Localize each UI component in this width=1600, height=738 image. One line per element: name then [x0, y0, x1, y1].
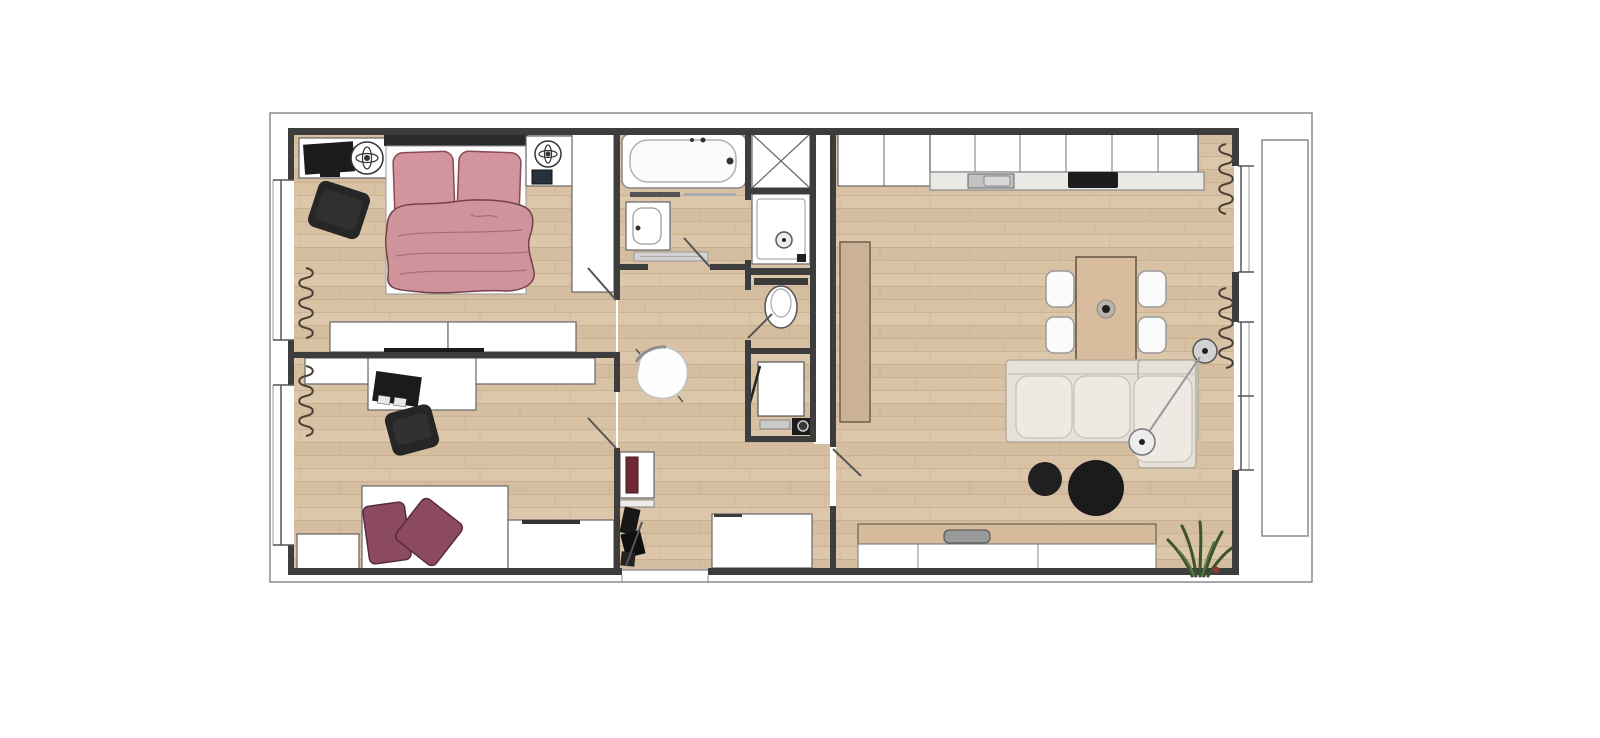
wall-bedroom-office	[288, 352, 620, 358]
sofa-cushion-2	[1074, 376, 1130, 438]
hall-pouf	[637, 347, 687, 398]
wall-right-b	[1232, 272, 1239, 322]
utility-appliance-dial	[798, 421, 808, 431]
floor-plan-page	[0, 0, 1600, 738]
laptop-key-2	[394, 397, 407, 407]
rosette-1-dot	[364, 155, 370, 161]
tv-sideboard-top	[858, 524, 1156, 544]
dining-chair-bl	[1046, 317, 1074, 353]
floor-plan-canvas	[0, 0, 1600, 738]
wall-bath-hall-b	[710, 264, 751, 270]
tub-dot-2	[701, 138, 706, 143]
washbasin-tap	[636, 226, 641, 231]
shower-head-dot	[782, 238, 786, 242]
wall-mid-a	[614, 128, 620, 300]
laptop-key-1	[378, 395, 391, 405]
bed-duvet	[386, 200, 535, 293]
tv-sideboard-front	[858, 544, 1156, 570]
wall-wc-niche	[745, 348, 816, 354]
wall-bottom-a	[288, 568, 622, 575]
living-floor	[836, 132, 1234, 570]
wall-living-b	[830, 506, 836, 568]
dining-chair-br	[1138, 317, 1166, 353]
bed-headboard	[384, 134, 528, 146]
desk-monitor-stand	[320, 172, 340, 177]
wall-col-left-a	[745, 128, 751, 200]
dining-chair-tr	[1138, 271, 1166, 307]
washing-machine	[758, 362, 804, 416]
wall-shaft-shower	[751, 188, 810, 194]
tub-faucet	[727, 158, 734, 165]
bedroom-dresser-left	[330, 322, 448, 352]
wall-left-b	[288, 340, 294, 385]
shower-item	[797, 254, 806, 262]
cooktop	[1068, 172, 1118, 188]
dining-chair-tl	[1046, 271, 1074, 307]
lamp-shade-dot	[1139, 439, 1145, 445]
coffee-table-large	[1068, 460, 1124, 516]
wall-mid-c	[614, 448, 620, 568]
lamp-base-dot	[1202, 348, 1208, 354]
plant-berry	[1213, 567, 1220, 574]
bedroom-wardrobe	[572, 134, 614, 292]
desk-monitor	[303, 141, 355, 174]
wall-top	[288, 128, 1239, 135]
wall-col-left-c	[745, 340, 751, 436]
plan-elements	[270, 113, 1312, 582]
tub-dot-1	[690, 138, 694, 142]
coffee-table-small	[1028, 462, 1062, 496]
balcony	[1262, 140, 1308, 536]
shower-tray	[752, 194, 810, 264]
bath-shelf-dark	[630, 192, 680, 197]
hall-closet	[712, 514, 812, 568]
kitchen-sink-basin	[984, 176, 1010, 186]
rosette-2-dot	[546, 152, 551, 157]
bedroom-dresser-right	[448, 322, 576, 352]
wall-bath-hall-a	[614, 264, 648, 270]
wc-tank	[754, 278, 808, 285]
shaft-strip	[814, 128, 832, 444]
tv	[944, 530, 990, 543]
wall-right-c	[1232, 470, 1239, 575]
hall-closet-track	[714, 514, 742, 517]
office-corner-cabinet	[297, 534, 359, 570]
bathtub-inner	[630, 140, 736, 182]
sofa-cushion-1	[1016, 376, 1072, 438]
wall-col-right	[810, 128, 816, 442]
wall-shower-wc	[745, 268, 816, 275]
wc-bowl	[765, 286, 797, 328]
office-low-cabinet	[508, 520, 614, 570]
nightstand-books	[532, 170, 552, 184]
hall-artwork	[626, 457, 638, 493]
wall-left-a	[288, 128, 294, 180]
living-tall-cabinet	[840, 242, 870, 422]
utility-shelf	[760, 420, 790, 429]
wall-living-a	[830, 128, 836, 447]
low-cabinet-track	[522, 520, 580, 524]
wall-bottom-b	[708, 568, 1239, 575]
table-centerpiece-dot	[1102, 305, 1110, 313]
wall-niche-bottom	[745, 436, 816, 442]
bath-shelf-gray	[684, 193, 736, 196]
hall-shelf-2	[620, 500, 654, 507]
